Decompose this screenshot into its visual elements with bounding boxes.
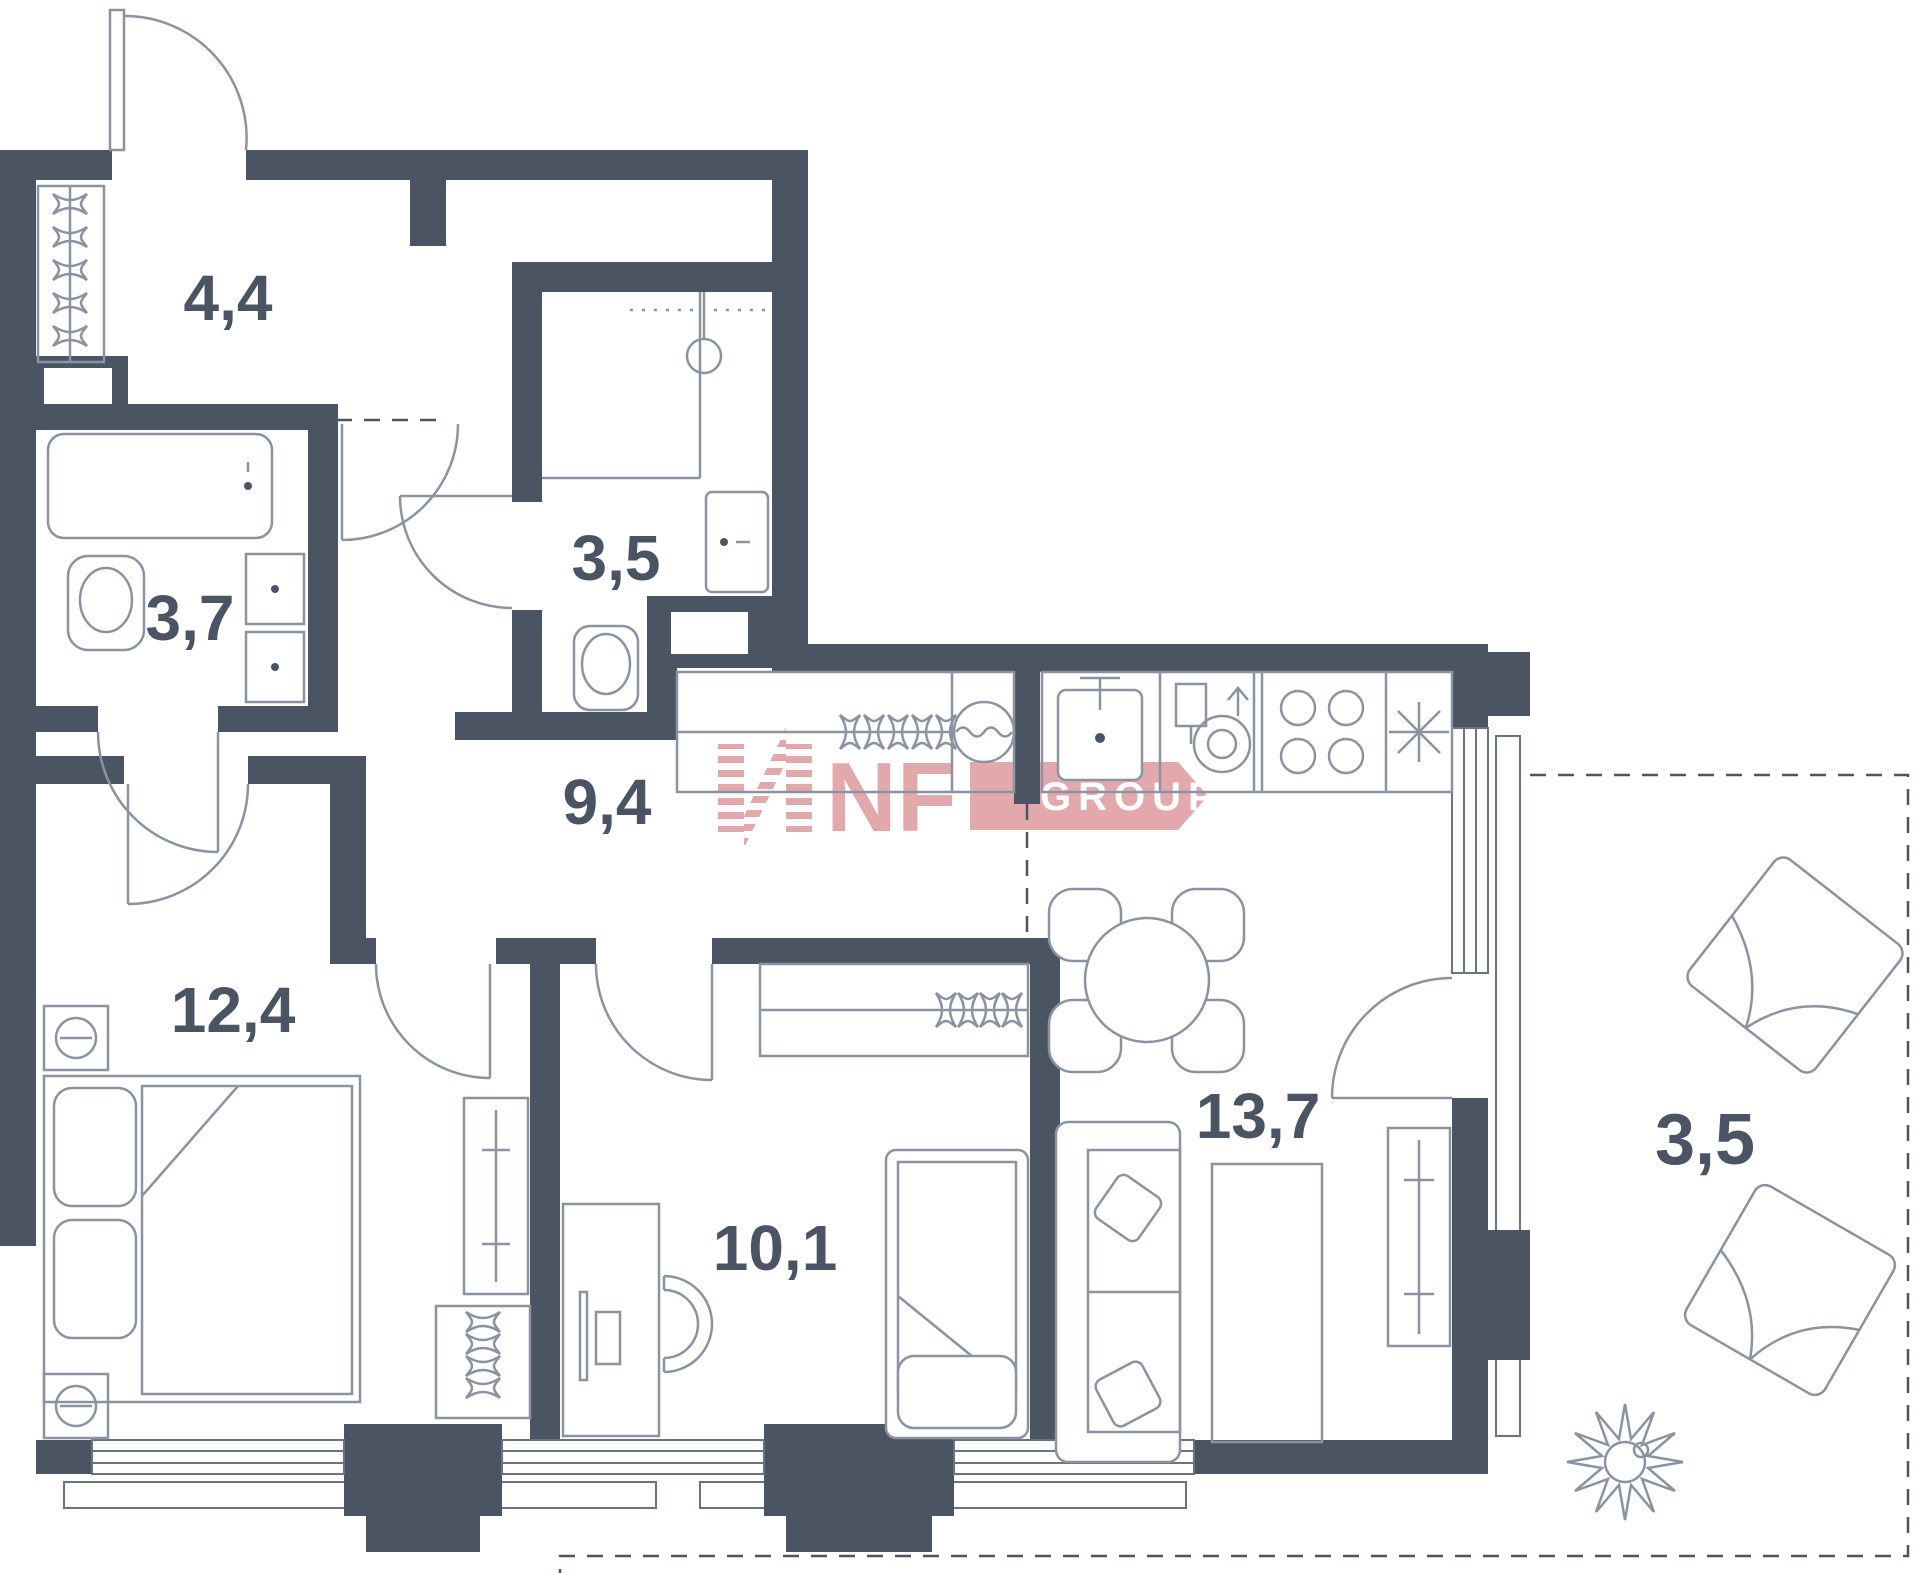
bathroom-fixtures: [48, 434, 304, 702]
dresser-icon: [436, 1306, 530, 1418]
shelf-rack-icon: [760, 964, 1028, 1056]
logo-nf-text: NF: [826, 742, 957, 852]
plant-icon: [1567, 1404, 1683, 1520]
logo-group-text: GROUP: [1040, 775, 1222, 819]
double-sink-icon: [246, 554, 304, 702]
double-bed-icon: [44, 1076, 360, 1402]
shower-icon: [542, 292, 770, 478]
tv-stand-icon: [1388, 1128, 1450, 1346]
nf-logo-icon: [718, 728, 812, 848]
toilet-icon: [68, 556, 144, 650]
washing-machine-icon: [954, 702, 1014, 762]
pouf-icon: [1683, 853, 1908, 1078]
entry-corridor-door: [342, 424, 458, 540]
bedroom-door: [128, 784, 248, 904]
desk-chair-icon: [664, 1276, 712, 1372]
fridge-icon: [1389, 702, 1449, 762]
bedroom-furniture: [44, 1006, 530, 1438]
kids-room-window: [502, 1440, 764, 1474]
dining-table-icon: [1049, 889, 1244, 1072]
floor-plan-canvas: NF GROUP: [0, 0, 1920, 1573]
stove-icon: [1281, 691, 1363, 773]
nightstand-icon: [44, 1006, 108, 1070]
single-bed-icon: [886, 1150, 1028, 1438]
wardrobe-icon: [464, 1098, 528, 1294]
pouf-icon: [1681, 1181, 1900, 1400]
hallway-wardrobe: [38, 186, 104, 362]
kids-room-door: [596, 964, 712, 1080]
bedroom-window: [92, 1440, 344, 1474]
desk-icon: [563, 1204, 659, 1436]
balcony-door: [1332, 978, 1452, 1098]
label-kids-room: 10,1: [713, 1212, 838, 1284]
sink-icon: [706, 492, 768, 592]
balcony-window: [1452, 728, 1488, 973]
kids-room-furniture: [563, 964, 1028, 1438]
kitchen-counter: [1042, 672, 1452, 792]
entrance-door: [110, 10, 247, 150]
dishwasher-icon: [1176, 684, 1250, 772]
bathroom-door: [98, 732, 218, 852]
floor-plan: NF GROUP: [0, 0, 1920, 1573]
label-bathroom: 3,7: [146, 582, 235, 654]
nf-group-watermark: NF GROUP: [718, 728, 1222, 852]
coffee-table-icon: [1212, 1164, 1322, 1442]
label-bedroom: 12,4: [171, 974, 296, 1046]
sofa-icon: [1056, 1122, 1180, 1462]
closet-door: [376, 964, 490, 1078]
kitchen-sink-icon: [1058, 678, 1142, 780]
balcony-furniture: [1567, 853, 1907, 1520]
label-balcony: 3,5: [1655, 1100, 1755, 1180]
label-corridor: 9,4: [563, 766, 652, 838]
living-room-furniture: [1049, 889, 1450, 1462]
label-living-kitchen: 13,7: [1196, 1080, 1321, 1152]
label-hallway: 4,4: [184, 262, 273, 334]
toilet-icon: [574, 626, 638, 710]
label-shower-room: 3,5: [572, 522, 661, 594]
bathtub-icon: [48, 434, 272, 538]
